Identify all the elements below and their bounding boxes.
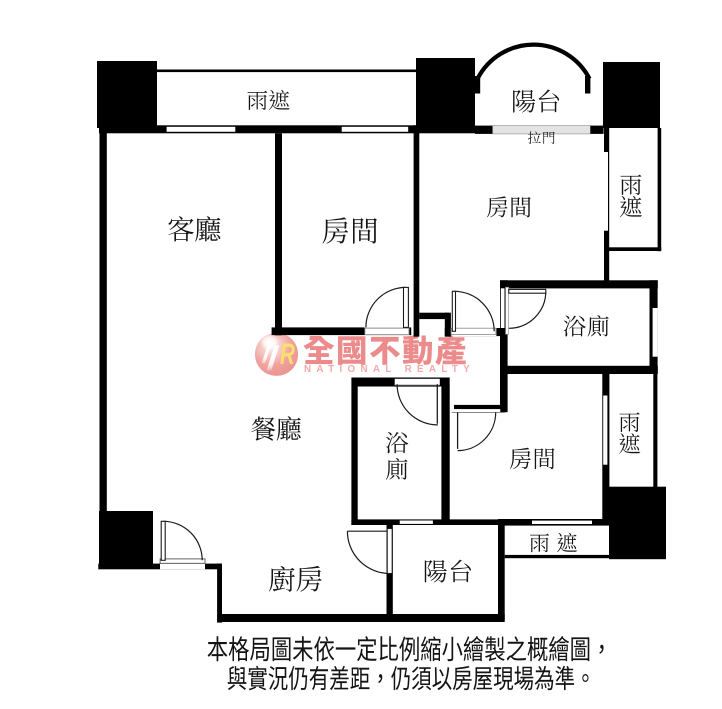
svg-text:R: R: [280, 338, 295, 371]
svg-text:NATIONAL REALTY: NATIONAL REALTY: [304, 364, 475, 375]
